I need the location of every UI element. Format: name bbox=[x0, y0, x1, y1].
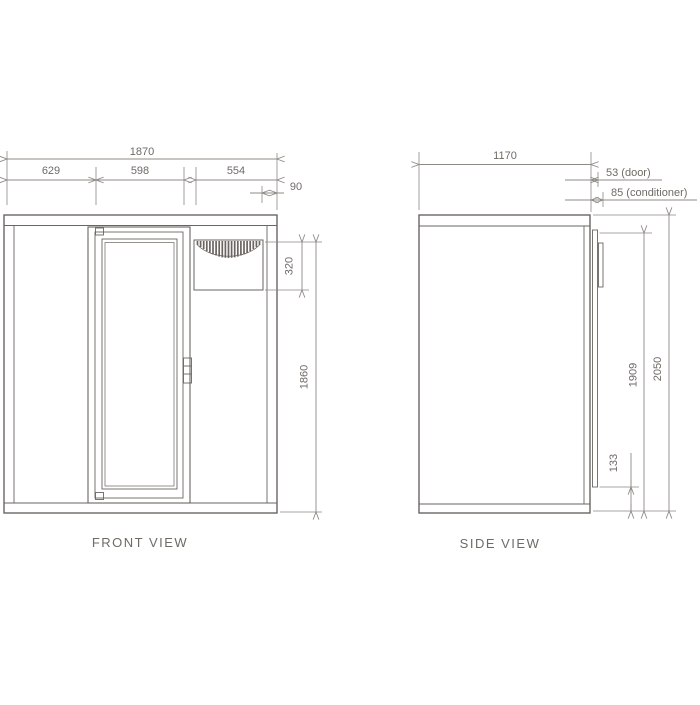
side-conditioner-profile bbox=[599, 243, 604, 287]
front-extension-lines bbox=[7, 151, 322, 512]
door-hinge-bottom-icon bbox=[96, 493, 104, 500]
dim-label-conditioner-height: 320 bbox=[284, 257, 296, 275]
front-view-title: FRONT VIEW bbox=[92, 535, 188, 550]
dim-label-body-height: 1860 bbox=[299, 365, 311, 389]
dim-door-protrusion: 53 (door) bbox=[565, 167, 662, 180]
dim-label-overall-width: 1870 bbox=[130, 146, 154, 158]
dim-label-edge-to-door: 629 bbox=[42, 165, 60, 177]
side-body-outline bbox=[419, 215, 590, 513]
dim-label-conditioner-protrusion: 85 (conditioner) bbox=[611, 187, 687, 199]
dim-label-door-height-total: 1909 bbox=[628, 363, 640, 387]
dim-floor-gap: 133 bbox=[608, 453, 631, 511]
dim-conditioner-protrusion: 85 (conditioner) bbox=[565, 187, 697, 200]
dim-label-vent-section: 554 bbox=[227, 165, 245, 177]
door-glass-inner bbox=[105, 243, 174, 487]
door-frame bbox=[88, 227, 190, 503]
front-body-outline bbox=[4, 215, 277, 513]
front-door bbox=[88, 227, 192, 503]
side-view-title: SIDE VIEW bbox=[460, 536, 541, 551]
side-view bbox=[419, 215, 603, 513]
side-door-profile bbox=[593, 230, 598, 487]
dim-label-overall-depth: 1170 bbox=[493, 150, 517, 162]
front-view bbox=[4, 215, 277, 513]
door-leaf bbox=[95, 232, 183, 498]
conditioner-vent-bars-icon bbox=[198, 241, 260, 258]
dim-label-door-protrusion: 53 (door) bbox=[606, 167, 651, 179]
technical-drawing-canvas: 1870 629 598 554 90 320 1860 FRONT VIEW … bbox=[0, 0, 700, 700]
dim-conditioner-edge-gap: 90 bbox=[250, 181, 302, 193]
dim-label-conditioner-edge-gap: 90 bbox=[290, 181, 302, 193]
side-view-dimensions: 1170 53 (door) 85 (conditioner) 1909 205… bbox=[419, 150, 697, 551]
dim-label-overall-height: 2050 bbox=[652, 357, 664, 381]
dim-label-floor-gap: 133 bbox=[608, 454, 620, 472]
front-conditioner bbox=[194, 240, 263, 290]
side-extension-lines bbox=[419, 152, 676, 511]
door-hinge-top-icon bbox=[96, 228, 104, 235]
dim-label-door-width: 598 bbox=[131, 165, 149, 177]
drawing-page: 1870 629 598 554 90 320 1860 FRONT VIEW … bbox=[0, 0, 700, 705]
door-glass-outer bbox=[102, 239, 177, 489]
